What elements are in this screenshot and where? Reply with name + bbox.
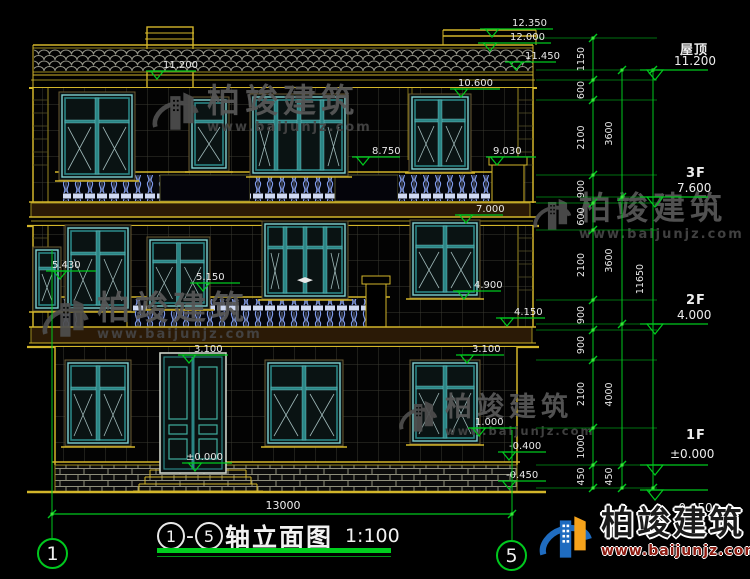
dim-text: 2100 <box>576 253 587 277</box>
dim-text: 900 <box>576 336 587 354</box>
dim-text: 12.000 <box>510 32 545 43</box>
elevation-drawing-canvas: 柏竣建筑 www.baijunjz.com 柏竣建筑 www.baijunjz.… <box>0 0 750 579</box>
dim-text: 4000 <box>604 382 615 406</box>
dim-text: -0.450 <box>506 470 538 481</box>
total-width-dimension: 13000 <box>248 499 318 512</box>
dim-node <box>592 299 595 302</box>
axis-bubble-1: 1 <box>37 538 68 569</box>
title-axis-end: 5 <box>195 522 223 550</box>
dim-node <box>592 202 595 205</box>
dim-text: 10.600 <box>458 78 493 89</box>
elevation-triangle-icon <box>501 318 514 326</box>
elevation-triangle-icon <box>647 465 663 475</box>
dim-text: ±0.000 <box>186 452 223 463</box>
elevation-triangle-icon <box>151 71 164 79</box>
level-name-2f: 2F <box>686 293 706 308</box>
brand-url: www.baijunjz.com <box>601 543 750 559</box>
level-elev-roof: 11.200 <box>674 54 716 68</box>
dim-node <box>592 359 595 362</box>
elevation-triangle-icon <box>491 157 504 165</box>
elevation-triangle-icon <box>510 62 523 70</box>
dim-text: 900 <box>576 180 587 198</box>
axis-bubble-5: 5 <box>496 540 527 571</box>
dim-text: 12.350 <box>512 18 547 29</box>
dim-node <box>652 487 655 490</box>
dim-node <box>592 229 595 232</box>
title-underline-thin <box>157 556 391 557</box>
axis-number: 1 <box>46 543 58 565</box>
elevation-triangle-icon <box>458 291 471 299</box>
elevation-triangle-icon <box>183 355 196 363</box>
elevation-triangle-icon <box>197 283 210 291</box>
dim-text: 8.750 <box>372 146 401 157</box>
title-scale: 1:100 <box>345 525 400 547</box>
title-separator: - <box>186 524 194 549</box>
dim-node <box>511 513 514 516</box>
dim-node <box>51 513 54 516</box>
level-name-1f: 1F <box>686 428 706 443</box>
dim-node <box>621 69 624 72</box>
dim-text: -0.400 <box>509 441 541 452</box>
dim-node <box>592 79 595 82</box>
dim-node <box>621 464 624 467</box>
axis-number: 5 <box>505 545 517 567</box>
dim-text: 600 <box>576 81 587 99</box>
level-elev-3f: 7.600 <box>677 181 711 195</box>
title-underline <box>157 548 391 553</box>
elevation-triangle-icon <box>189 463 202 471</box>
dim-text: 1.000 <box>475 417 504 428</box>
dim-node <box>592 487 595 490</box>
dim-text: 1150 <box>576 47 587 71</box>
dim-node <box>592 464 595 467</box>
dim-text: 2100 <box>576 125 587 149</box>
dim-text: 450 <box>604 467 615 485</box>
dim-text: 9.030 <box>493 146 522 157</box>
dim-text: 11650 <box>635 264 646 294</box>
level-elev-2f: 4.000 <box>677 308 711 322</box>
dim-text: 450 <box>576 467 587 485</box>
elevation-triangle-icon <box>647 197 663 207</box>
dim-node <box>621 487 624 490</box>
elevation-triangle-icon <box>455 89 468 97</box>
elevation-triangle-icon <box>484 43 497 51</box>
dim-text: 2100 <box>576 382 587 406</box>
dim-text: 3.100 <box>194 344 223 355</box>
dim-node <box>592 427 595 430</box>
elevation-triangle-icon <box>503 481 516 489</box>
dim-node <box>592 37 595 40</box>
elevation-triangle-icon <box>461 355 474 363</box>
level-elev-1f: ±0.000 <box>670 447 714 461</box>
elevation-triangle-icon <box>647 324 663 334</box>
dim-node <box>592 329 595 332</box>
dim-node <box>592 99 595 102</box>
title-axis-start: 1 <box>157 522 185 550</box>
dim-node <box>621 196 624 199</box>
dim-text: 11.200 <box>163 60 198 71</box>
dim-text: 7.000 <box>476 204 505 215</box>
dim-text: 3600 <box>604 121 615 145</box>
dim-text: 4.150 <box>514 307 543 318</box>
dim-text: 5.430 <box>52 260 81 271</box>
elevation-triangle-icon <box>54 271 67 279</box>
elevation-triangle-icon <box>647 70 663 80</box>
dim-text: 3.100 <box>472 344 501 355</box>
dim-text: 11.450 <box>525 51 560 62</box>
elevation-triangle-icon <box>503 452 516 460</box>
dim-text: 900 <box>576 306 587 324</box>
dim-text: 1000 <box>576 434 587 458</box>
dim-text: 5.150 <box>196 272 225 283</box>
annotation-svg: 1150600210090060021009009002100100045036… <box>0 0 750 579</box>
dim-text: 3600 <box>604 248 615 272</box>
elevation-triangle-icon <box>357 157 370 165</box>
elevation-triangle-icon <box>460 215 473 223</box>
dim-text: 4.900 <box>474 280 503 291</box>
brand-logo-icon <box>533 506 595 570</box>
dim-text: 600 <box>576 207 587 225</box>
level-name-3f: 3F <box>686 166 706 181</box>
dim-node <box>592 174 595 177</box>
brand-logo-block: 柏竣建筑 www.baijunjz.com <box>533 506 750 570</box>
elevation-triangle-icon <box>473 428 486 436</box>
elevation-triangle-icon <box>486 29 499 37</box>
brand-name: 柏竣建筑 <box>601 506 750 539</box>
dim-node <box>621 323 624 326</box>
